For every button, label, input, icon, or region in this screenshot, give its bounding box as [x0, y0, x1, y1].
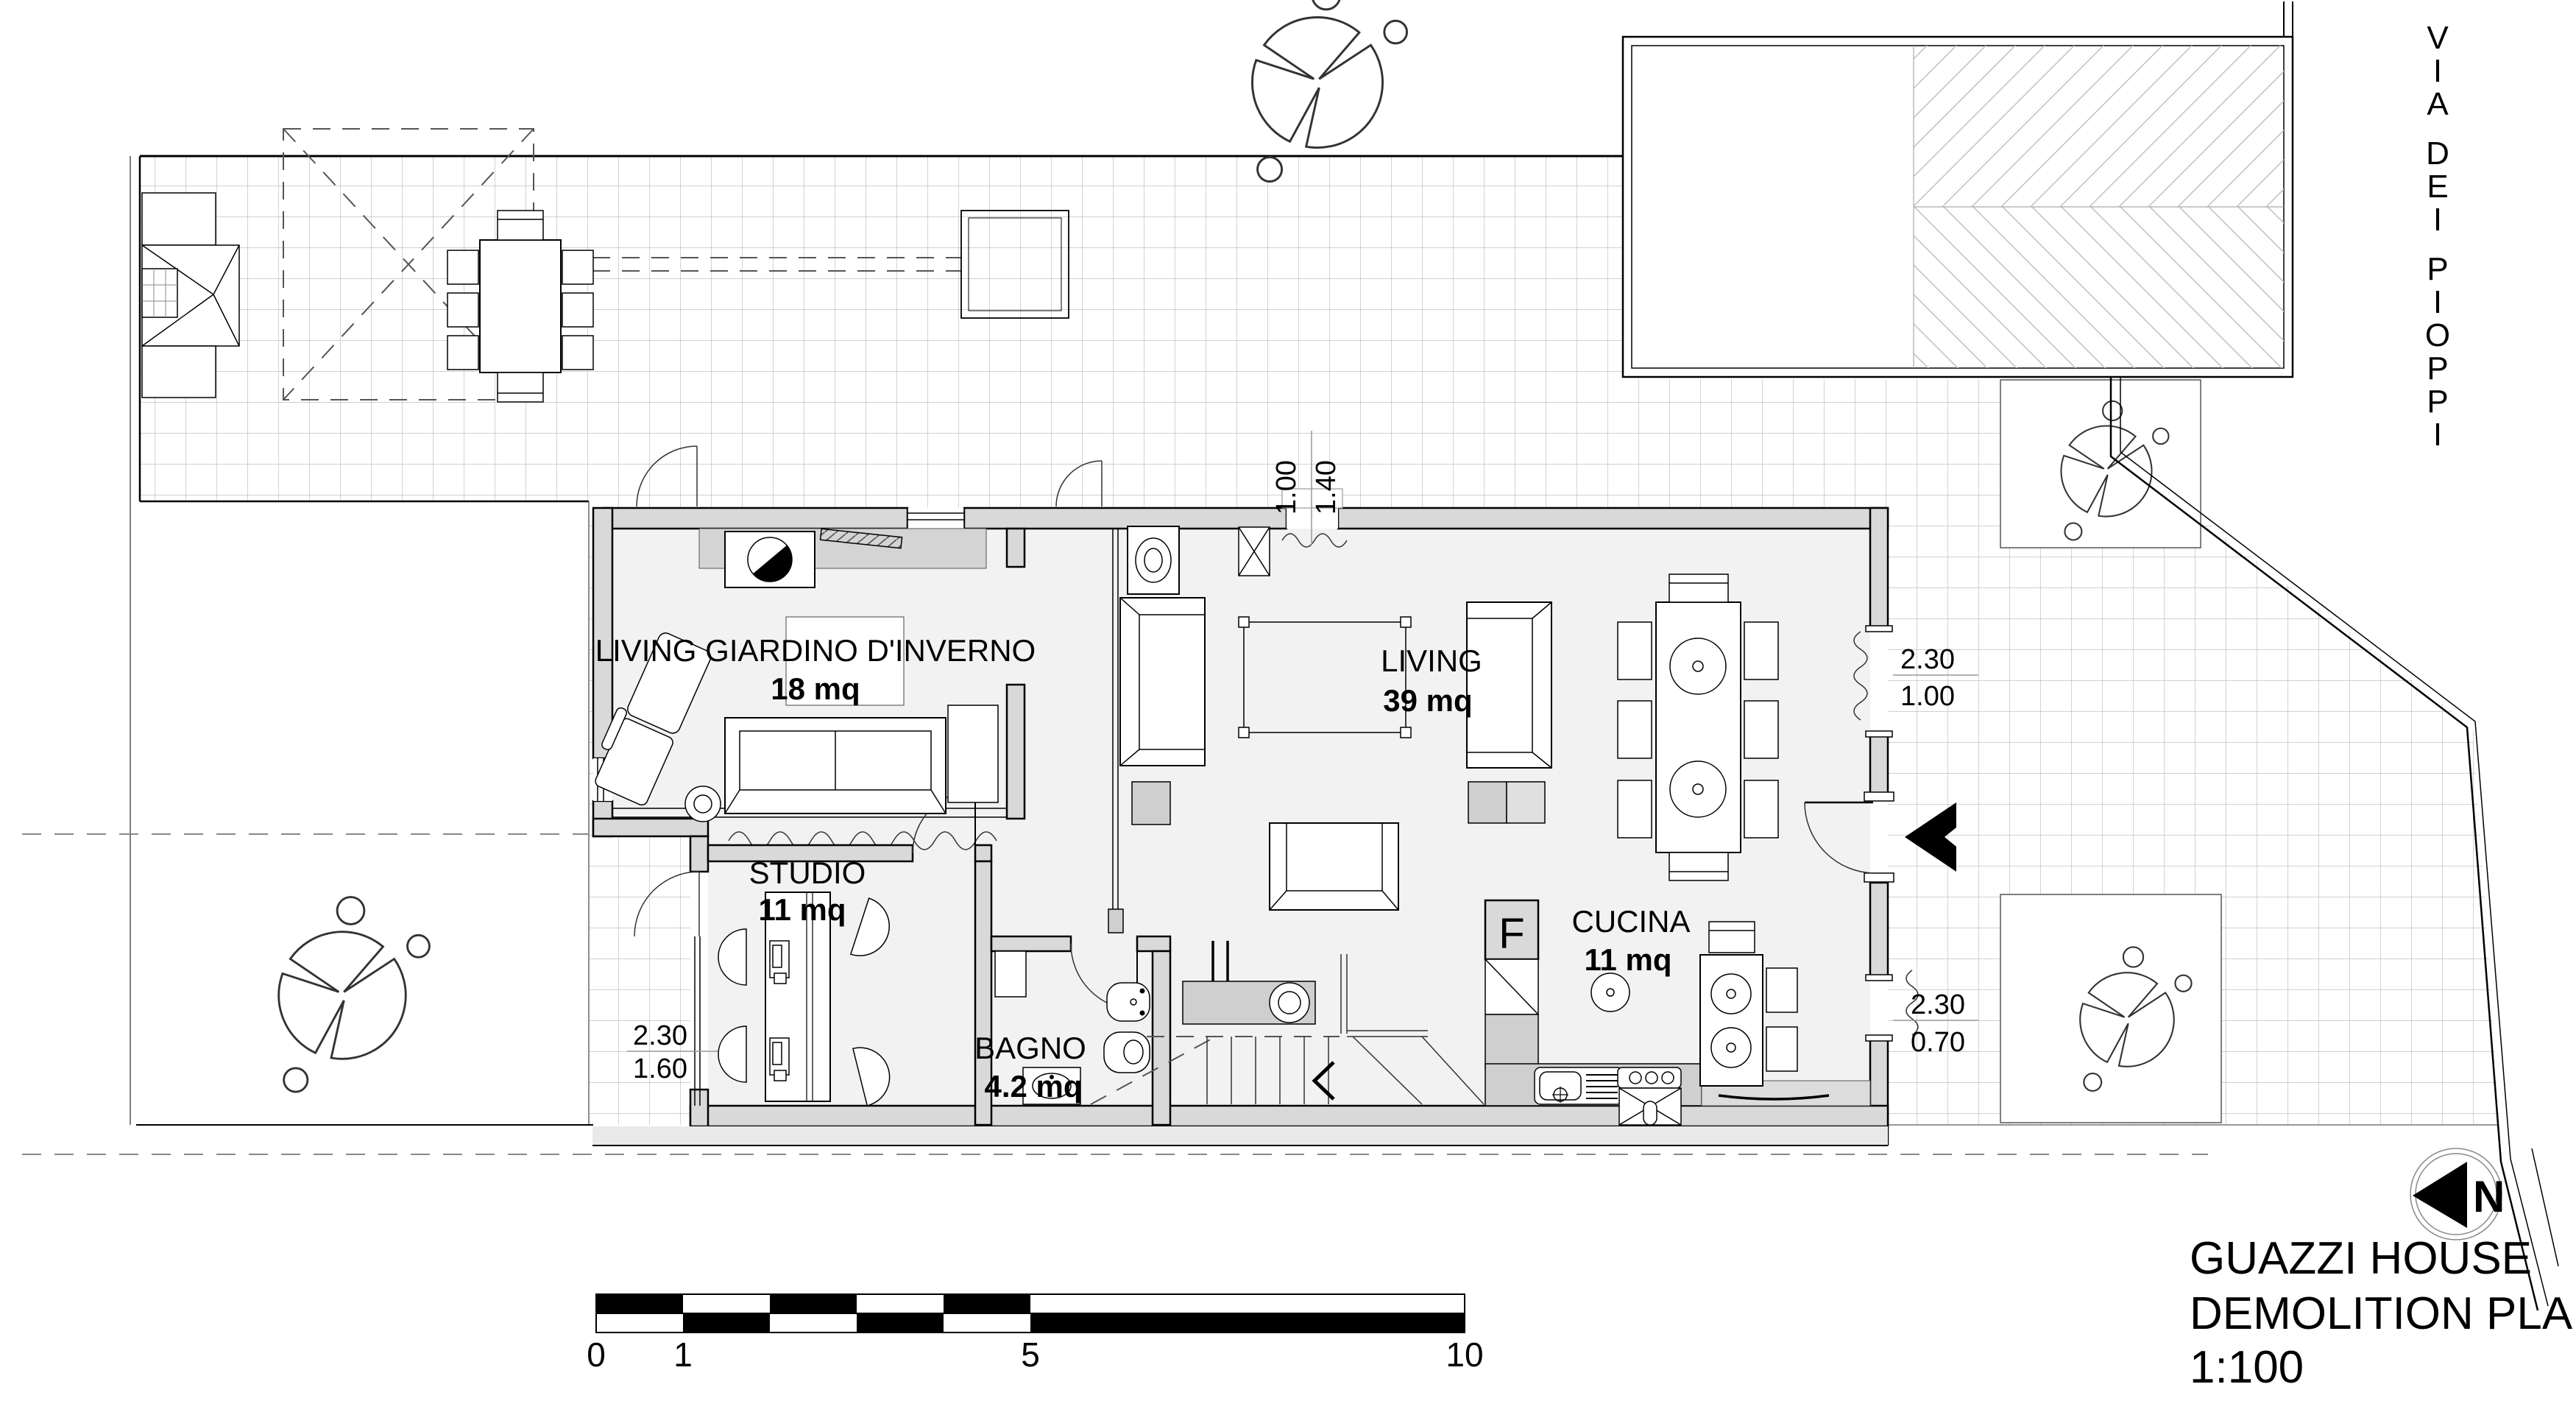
- sofa: [725, 718, 946, 813]
- sofa: [1467, 602, 1551, 768]
- kitchen-stove: [1618, 1067, 1681, 1125]
- end-table: [1507, 782, 1545, 823]
- street-letter: A: [2427, 86, 2449, 122]
- scale-bar: 0 1 5 10: [587, 1294, 1483, 1374]
- sofa: [1120, 598, 1205, 766]
- end-table: [1468, 782, 1507, 823]
- street-letter: E: [2427, 169, 2448, 205]
- drawing-scale: 1:100: [2190, 1342, 2304, 1393]
- tree-icon: [1252, 0, 1406, 182]
- sidewalk-band: [592, 1126, 1888, 1146]
- side-table: [948, 705, 998, 802]
- room-name: LIVING GIARDINO D'INVERNO: [595, 633, 1036, 668]
- door-jamb: [1864, 873, 1894, 882]
- hall-boiler: [1183, 981, 1315, 1024]
- street-letter: P: [2427, 350, 2448, 386]
- dim-text: 2.30: [633, 1020, 687, 1051]
- north-label: N: [2473, 1172, 2505, 1221]
- floor-plan: VIADEIPIOPPI: [0, 0, 2576, 1412]
- fridge-label: F: [1498, 910, 1524, 958]
- street-letter: I: [2433, 284, 2442, 320]
- dim-text: 0.70: [1911, 1027, 1965, 1058]
- street-letter: P: [2427, 384, 2448, 420]
- pool: [1623, 1, 2293, 377]
- kitchen-sink: [1535, 1067, 1623, 1104]
- title-block: GUAZZI HOUSE DEMOLITION PLAN 1:100: [2190, 1233, 2576, 1393]
- door-jamb: [1864, 792, 1894, 801]
- north-arrow: N: [2410, 1148, 2505, 1240]
- window-jamb: [1866, 626, 1892, 632]
- street-letter: I: [2433, 417, 2442, 453]
- bath-cabinet: [995, 951, 1026, 997]
- dim-text: 2.30: [1900, 644, 1955, 675]
- scale-tick: 10: [1446, 1335, 1483, 1374]
- room-name: BAGNO: [974, 1031, 1086, 1065]
- legend: 0 1 5 10 N GUAZZI HOUSE DEMOLITION PLAN …: [587, 1148, 2576, 1393]
- street-letter: I: [2433, 53, 2442, 89]
- tree-icon: [279, 897, 430, 1092]
- dim-text: 2.30: [1911, 989, 1965, 1020]
- window-jamb: [1866, 975, 1892, 981]
- dim-text: 1.40: [1311, 460, 1342, 515]
- room-name: STUDIO: [749, 855, 866, 890]
- street-letter: I: [2433, 202, 2442, 238]
- room-area: 4.2 mq: [984, 1069, 1082, 1104]
- street-letter: V: [2427, 20, 2449, 56]
- dim-text: 1.00: [1900, 681, 1955, 712]
- scale-tick: 5: [1021, 1335, 1040, 1374]
- drawing-title: DEMOLITION PLAN: [2190, 1288, 2576, 1339]
- room-name: LIVING: [1381, 643, 1482, 678]
- street-name: VIADEIPIOPPI: [2425, 20, 2450, 453]
- stool: [1591, 973, 1630, 1012]
- dim-text: 1.00: [1271, 460, 1302, 515]
- street-letter: D: [2426, 135, 2449, 172]
- street-letter: P: [2427, 251, 2448, 287]
- window-jamb: [1866, 731, 1892, 737]
- dim-text: 1.60: [633, 1053, 687, 1084]
- window: [907, 508, 964, 529]
- project-title: GUAZZI HOUSE: [2190, 1233, 2532, 1284]
- room-area: 11 mq: [1584, 942, 1671, 977]
- glazed-wall: [695, 936, 700, 1106]
- north-triangle-icon: [2413, 1162, 2467, 1228]
- room-area: 11 mq: [758, 892, 846, 927]
- workstation: [770, 941, 789, 984]
- room-name: CUCINA: [1571, 904, 1690, 939]
- scale-tick: 0: [587, 1335, 606, 1374]
- street-letter: O: [2425, 317, 2450, 353]
- room-area: 18 mq: [771, 671, 860, 706]
- end-table: [1132, 782, 1170, 825]
- armchair: [1270, 823, 1398, 910]
- counter: [1485, 1014, 1538, 1069]
- workstation: [770, 1038, 789, 1081]
- window-jamb: [1866, 1035, 1892, 1041]
- room-area: 39 mq: [1383, 683, 1472, 718]
- scale-tick: 1: [673, 1335, 693, 1374]
